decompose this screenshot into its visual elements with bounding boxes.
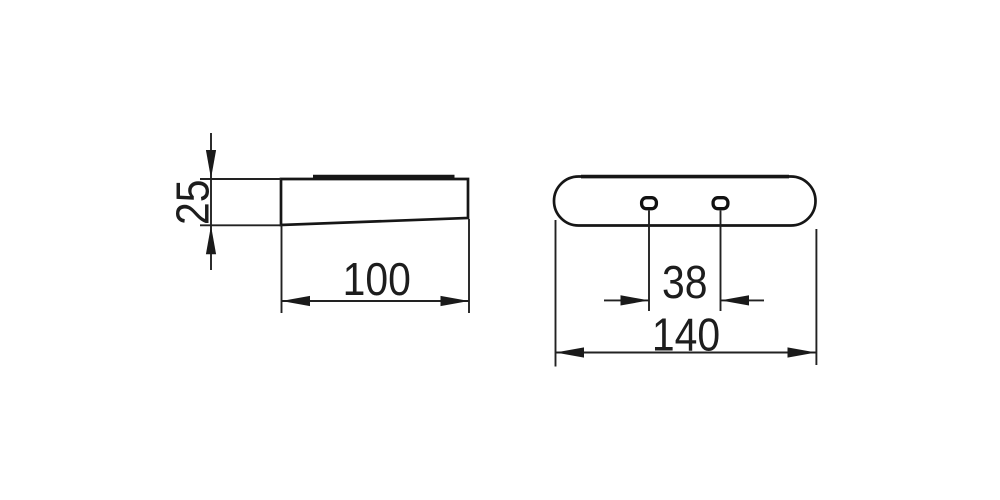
svg-text:38: 38 xyxy=(662,257,708,309)
svg-text:100: 100 xyxy=(343,254,411,306)
svg-text:140: 140 xyxy=(652,309,720,361)
svg-text:25: 25 xyxy=(167,179,219,225)
